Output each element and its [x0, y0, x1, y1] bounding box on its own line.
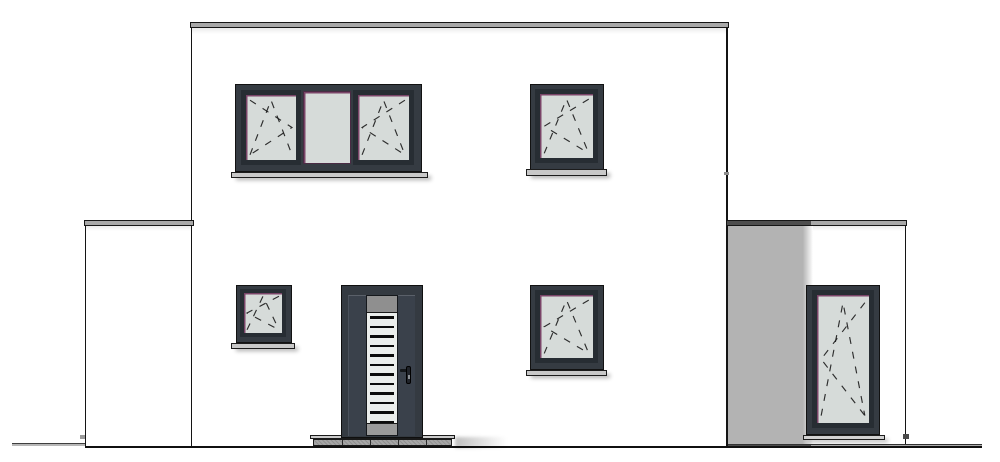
right-wing-roof-shadow [813, 226, 905, 231]
lower-left-window-sill [231, 343, 295, 349]
door-glass-strip [366, 295, 398, 436]
door-louver-bar [370, 345, 394, 348]
main-roof-shadow [192, 28, 726, 34]
opening-symbol-icon [540, 94, 593, 159]
door-step-base [313, 439, 453, 446]
lower-left-casement [240, 289, 286, 337]
right-wing-roof-shade [727, 221, 811, 225]
upper-triple-casement-right [353, 90, 414, 165]
elevation-drawing [0, 0, 1000, 462]
door-louver-bar [370, 402, 394, 405]
lower-right-casement [535, 290, 598, 364]
left-level-marker-icon [80, 435, 85, 439]
door-bottom-panel [367, 423, 397, 435]
door-louver-bar [370, 364, 394, 367]
entry-door-frame [341, 285, 422, 438]
door-louver-bar [370, 326, 394, 329]
upper-right-window-frame [530, 84, 604, 170]
upper-triple-casement-left [241, 90, 301, 165]
door-louver-bar [370, 392, 394, 395]
opening-symbol-icon [358, 95, 409, 160]
door-top-panel [367, 296, 397, 313]
door-louver-glass [367, 313, 397, 427]
opening-symbol-icon [244, 293, 282, 333]
upper-triple-fixed-pane [303, 91, 352, 164]
left-ground-strip [12, 443, 85, 446]
upper-triple-window-sill [231, 172, 429, 178]
right-level-marker-icon [903, 434, 909, 439]
door-step-shadow [455, 437, 507, 448]
upper-triple-window-frame [235, 84, 423, 172]
step-segment-divider [342, 440, 343, 445]
door-louver-bar [370, 354, 394, 357]
tall-window-casement [812, 290, 874, 428]
opening-symbol-icon [246, 95, 296, 160]
opening-symbol-icon [540, 295, 593, 359]
left-wing-wall-edge [85, 226, 86, 447]
ground-line [85, 446, 982, 448]
door-louver-bar [370, 411, 394, 414]
left-wing-roof-slab [84, 220, 194, 226]
door-louver-bar [370, 373, 394, 376]
tall-window-frame [806, 285, 880, 435]
right-wing-wall-edge [905, 226, 906, 447]
opening-symbol-icon [817, 295, 869, 423]
recessed-wall-shading [728, 226, 813, 444]
door-louver-bar [370, 316, 394, 319]
upper-right-window-sill [526, 169, 607, 176]
step-segment-divider [370, 440, 371, 445]
door-handle-escutcheon [406, 366, 411, 385]
left-wing-roof-shadow [86, 226, 191, 231]
tall-window-sill [803, 435, 886, 440]
lower-right-window-sill [526, 370, 607, 376]
door-keyhole-icon [408, 375, 410, 379]
step-segment-divider [398, 440, 399, 445]
door-louver-bar [370, 335, 394, 338]
door-louver-bar [370, 383, 394, 386]
main-wall-left-edge [191, 27, 192, 447]
lower-left-window-frame [236, 285, 292, 343]
floor-level-marker-icon [724, 172, 728, 175]
upper-right-casement [535, 89, 598, 164]
step-segment-divider [426, 440, 427, 445]
lower-right-window-frame [530, 285, 604, 370]
